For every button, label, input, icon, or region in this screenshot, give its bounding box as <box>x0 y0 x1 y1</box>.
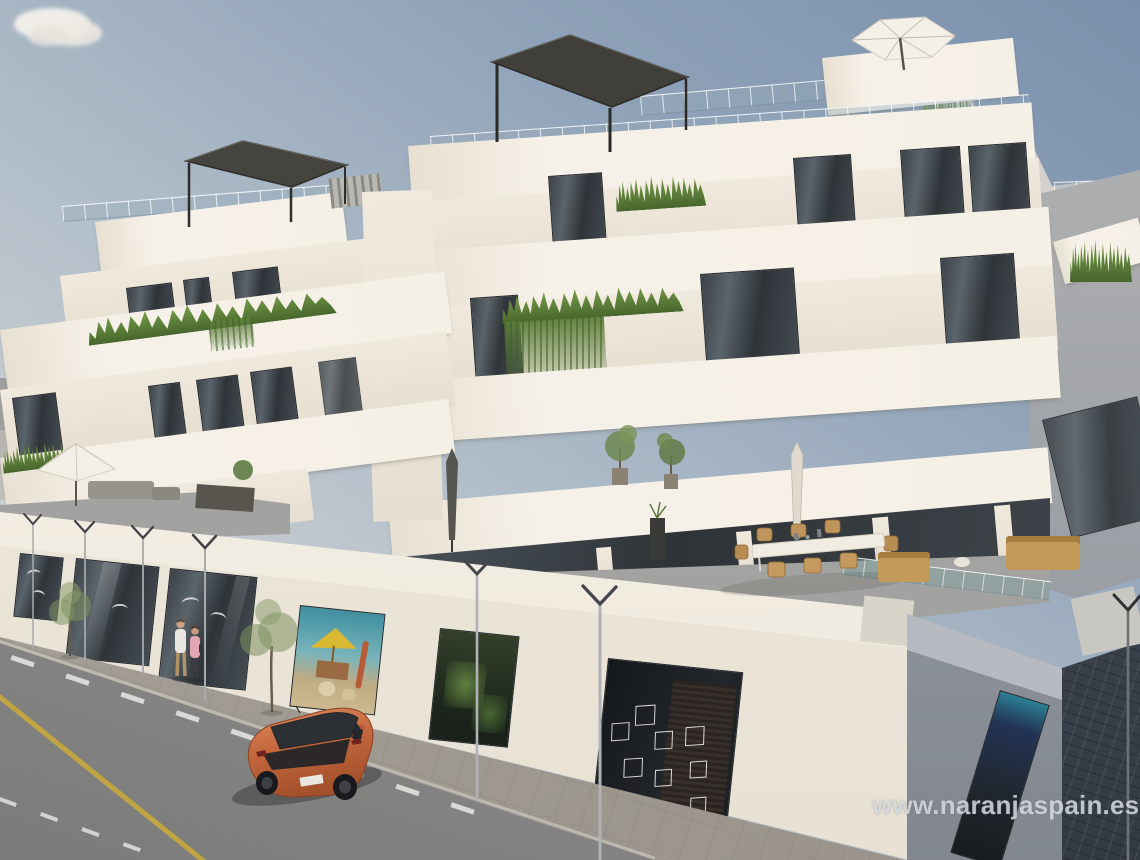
pedestrian <box>172 620 192 682</box>
foreground-overlay <box>0 0 1140 860</box>
watermark-url: www.naranjaspain.es <box>872 790 1134 821</box>
sidewalk-tree <box>240 599 298 716</box>
terrace-lounge-left <box>88 460 253 500</box>
rooftop-umbrella <box>852 17 955 70</box>
terrace-potted-tree <box>605 425 637 485</box>
closed-parasol-dark <box>446 448 458 552</box>
rooftop-pergola-right <box>492 35 688 152</box>
terrace-potted-tree <box>657 433 685 489</box>
terrace-lounge-right <box>878 536 1080 582</box>
orange-hatchback-car <box>230 706 385 814</box>
rooftop-pergola-left <box>186 141 347 227</box>
pedestrian <box>187 627 203 683</box>
terrace-tall-pot <box>650 502 666 560</box>
architectural-render-scene: www.naranjaspain.es <box>0 0 1140 860</box>
